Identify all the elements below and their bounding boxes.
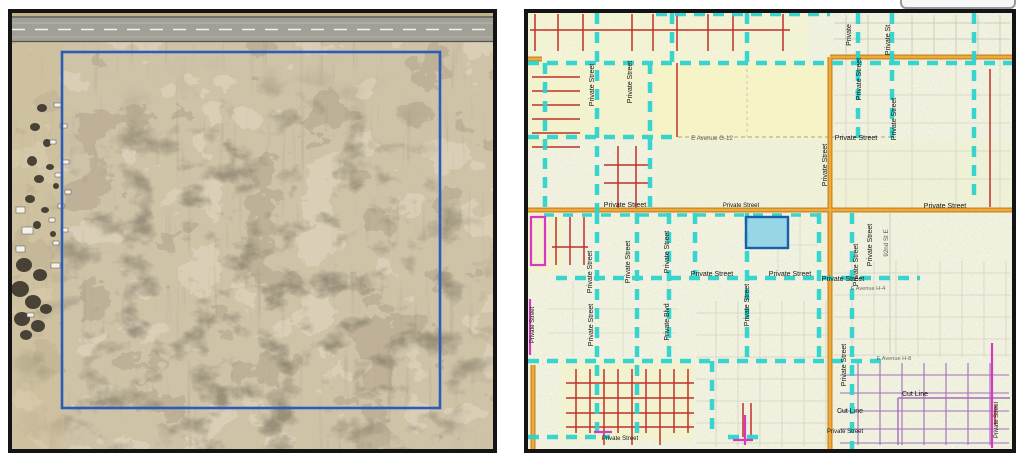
street-label: E Avenue H-8: [877, 356, 911, 362]
street-label: Private Street: [822, 144, 829, 186]
street-label: Private Street: [744, 284, 751, 326]
paved-road: [12, 13, 493, 42]
street-label: Private Street: [827, 429, 864, 435]
terrain-texture: [12, 13, 493, 449]
street-label: Private Street: [691, 271, 733, 278]
street-label: Private Street: [588, 304, 595, 346]
street-label: E Avenue G-12: [691, 135, 733, 142]
street-label: Private Street: [530, 306, 536, 343]
street-label: Private Street: [723, 203, 760, 209]
street-label: Private Street: [627, 61, 634, 103]
street-label: Private Street: [604, 202, 646, 209]
street-label: Private St: [885, 25, 892, 55]
street-label: Private Street: [853, 244, 860, 286]
street-label: Private Street: [867, 224, 874, 266]
street-label: Private Street: [841, 344, 848, 386]
street-map-panel: Private Street Private Street Private St…: [524, 9, 1016, 453]
aerial-photo: [12, 13, 493, 449]
aerial-photo-panel: [8, 9, 497, 453]
street-label: Private Street: [589, 64, 596, 106]
highlighted-parcel[interactable]: [746, 217, 788, 248]
report-page: Private Street Private Street Private St…: [0, 0, 1024, 462]
street-label: Private Street: [924, 203, 966, 210]
toolbar-fragment[interactable]: [900, 0, 1016, 9]
cut-line-label: Cut Line: [902, 391, 928, 398]
street-label: Private Street: [856, 58, 863, 100]
street-label: Private Street: [587, 251, 594, 293]
cut-line-label: Cut Line: [837, 408, 863, 415]
street-label: Private Street: [602, 436, 639, 442]
street-label: Private Street: [994, 401, 1000, 438]
street-label: Private Street: [769, 271, 811, 278]
street-label: Private Blvd: [664, 303, 671, 340]
street-label: Private Street: [664, 231, 671, 273]
street-label: 92nd St E: [883, 229, 890, 256]
street-label: Private Street: [835, 135, 877, 142]
street-map: Private Street Private Street Private St…: [528, 13, 1012, 449]
street-label: Private: [846, 24, 853, 46]
street-label: Private Street: [625, 241, 632, 283]
street-label: Private Street: [891, 98, 898, 140]
